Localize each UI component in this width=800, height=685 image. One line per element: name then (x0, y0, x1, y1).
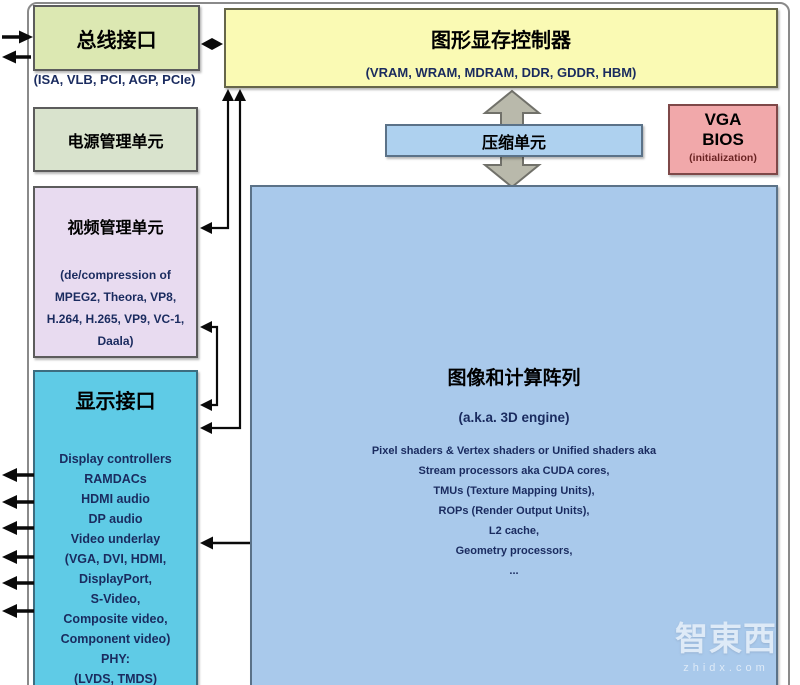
gmc-subtitle: (VRAM, WRAM, MDRAM, DDR, GDDR, HBM) (226, 65, 776, 80)
video-detail-line: H.264, H.265, VP9, VC-1, (35, 308, 196, 330)
video-detail-line: Daala) (35, 330, 196, 352)
graphics-memory-controller-box: 图形显存控制器 (VRAM, WRAM, MDRAM, DDR, GDDR, H… (224, 8, 778, 88)
compute-array-details: Pixel shaders & Vertex shaders or Unifie… (252, 441, 776, 581)
array-detail-line: Pixel shaders & Vertex shaders or Unifie… (252, 441, 776, 461)
array-detail-line: Geometry processors, (252, 541, 776, 561)
video-management-title: 视频管理单元 (35, 214, 196, 238)
compute-array-subtitle: (a.k.a. 3D engine) (252, 410, 776, 425)
video-detail-line: (de/compression of (35, 264, 196, 286)
display-detail-line: (VGA, DVI, HDMI, (35, 549, 196, 569)
display-detail-line: S-Video, (35, 589, 196, 609)
display-detail-line: Component video) (35, 629, 196, 649)
video-detail-line: MPEG2, Theora, VP8, (35, 286, 196, 308)
display-detail-line: (LVDS, TMDS) (35, 669, 196, 685)
bus-interface-title: 总线接口 (77, 24, 157, 53)
display-interface-title: 显示接口 (35, 385, 196, 414)
display-detail-line: DP audio (35, 509, 196, 529)
compression-unit-title: 压缩单元 (482, 129, 546, 153)
array-detail-line: L2 cache, (252, 521, 776, 541)
power-management-box: 电源管理单元 (33, 107, 198, 172)
display-detail-line: PHY: (35, 649, 196, 669)
gpu-architecture-diagram: 总线接口 (ISA, VLB, PCI, AGP, PCIe) 图形显存控制器 … (0, 0, 800, 685)
display-detail-line: Video underlay (35, 529, 196, 549)
display-detail-line: RAMDACs (35, 469, 196, 489)
compression-unit-box: 压缩单元 (385, 124, 643, 157)
watermark-url: zhidx.com (660, 662, 792, 674)
array-detail-line: Stream processors aka CUDA cores, (252, 461, 776, 481)
vga-bios-box: VGA BIOS (initialization) (668, 104, 778, 175)
power-management-title: 电源管理单元 (67, 128, 163, 152)
bus-interface-subtitle: (ISA, VLB, PCI, AGP, PCIe) (12, 72, 217, 87)
vga-bios-init-label: (initialization) (670, 152, 776, 164)
display-interface-box: 显示接口 Display controllers RAMDACs HDMI au… (33, 370, 198, 685)
video-management-box: 视频管理单元 (de/compression of MPEG2, Theora,… (33, 186, 198, 358)
vga-bios-line2: BIOS (670, 130, 776, 150)
display-detail-line: DisplayPort, (35, 569, 196, 589)
array-detail-line: ... (252, 561, 776, 581)
array-detail-line: TMUs (Texture Mapping Units), (252, 481, 776, 501)
compute-array-title: 图像和计算阵列 (252, 363, 776, 390)
display-interface-details: Display controllers RAMDACs HDMI audio D… (35, 449, 196, 685)
watermark-logo: 智東西 (660, 612, 792, 660)
vga-bios-line1: VGA (670, 110, 776, 130)
display-detail-line: Display controllers (35, 449, 196, 469)
display-detail-line: HDMI audio (35, 489, 196, 509)
gmc-title: 图形显存控制器 (226, 24, 776, 53)
array-detail-line: ROPs (Render Output Units), (252, 501, 776, 521)
display-detail-line: Composite video, (35, 609, 196, 629)
video-management-details: (de/compression of MPEG2, Theora, VP8, H… (35, 264, 196, 352)
compute-array-box: 图像和计算阵列 (a.k.a. 3D engine) Pixel shaders… (250, 185, 778, 685)
bus-interface-box: 总线接口 (33, 5, 200, 71)
watermark: 智東西 zhidx.com (660, 612, 792, 674)
